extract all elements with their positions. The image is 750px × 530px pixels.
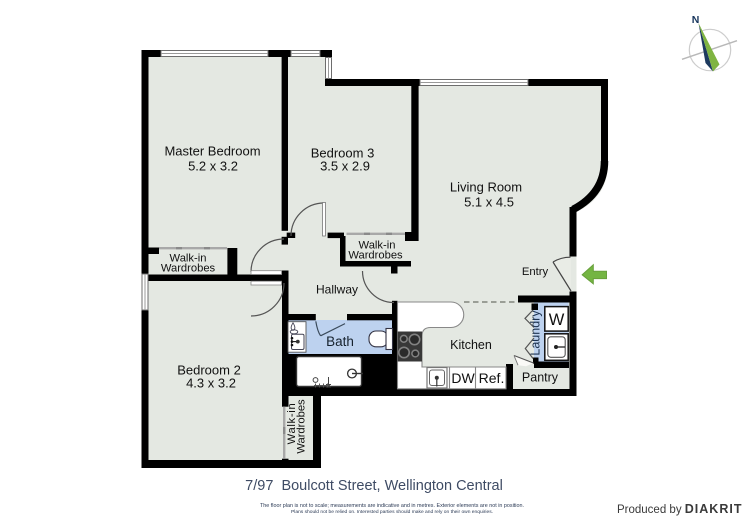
svg-text:Wardrobes: Wardrobes: [348, 250, 403, 262]
svg-text:Produced by DIAKRIT: Produced by DIAKRIT: [617, 502, 742, 516]
svg-text:3.5 x 2.9: 3.5 x 2.9: [320, 159, 370, 174]
svg-text:Kitchen: Kitchen: [450, 338, 492, 352]
svg-text:DW: DW: [451, 370, 475, 386]
svg-text:Bath: Bath: [326, 334, 354, 349]
svg-text:7/97 Boulcott Street, Welling: 7/97 Boulcott Street, Wellington Central: [245, 478, 503, 494]
svg-text:Entry: Entry: [522, 266, 549, 278]
svg-text:N: N: [692, 14, 700, 26]
svg-text:5.1 x 4.5: 5.1 x 4.5: [464, 195, 514, 210]
svg-text:Living Room: Living Room: [450, 180, 522, 195]
svg-text:Wardrobes: Wardrobes: [161, 263, 216, 275]
svg-text:Wardrobes: Wardrobes: [296, 399, 308, 454]
svg-text:5.2 x 3.2: 5.2 x 3.2: [188, 159, 238, 174]
svg-text:4.3 x 3.2: 4.3 x 3.2: [186, 376, 236, 391]
svg-text:Pantry: Pantry: [522, 371, 559, 385]
svg-text:Master Bedroom: Master Bedroom: [164, 144, 260, 159]
svg-text:W: W: [549, 311, 565, 329]
svg-text:Plans should not be relied on.: Plans should not be relied on. Intereste…: [291, 509, 493, 515]
svg-text:The floor plan is not to scale: The floor plan is not to scale; measurem…: [260, 503, 524, 509]
svg-text:Hallway: Hallway: [316, 283, 358, 297]
svg-text:Ref.: Ref.: [479, 370, 505, 386]
svg-text:Laundry: Laundry: [529, 310, 543, 356]
